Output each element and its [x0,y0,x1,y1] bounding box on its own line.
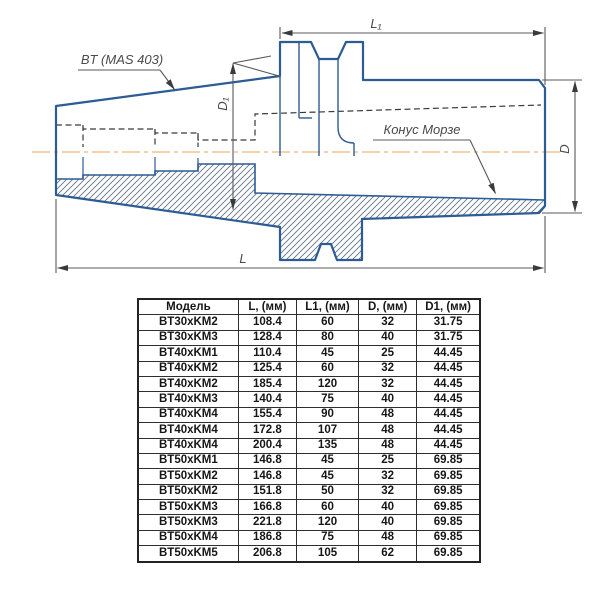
table-cell: 40 [359,500,417,515]
table-cell: 40 [359,330,417,345]
table-cell: 120 [296,515,358,530]
table-cell: 120 [296,376,358,391]
table-cell: BT40xKM2 [138,376,238,391]
table-cell: BT40xKM4 [138,407,238,422]
table-cell: 32 [359,376,417,391]
spec-table-head: МодельL, (мм)L1, (мм)D, (мм)D1, (мм) [138,299,480,315]
table-cell: 185.4 [238,376,296,391]
table-cell: 221.8 [238,515,296,530]
table-cell: 80 [296,330,358,345]
table-cell: 32 [359,484,417,499]
header-row: МодельL, (мм)L1, (мм)D, (мм)D1, (мм) [138,299,480,315]
spec-table: МодельL, (мм)L1, (мм)D, (мм)D1, (мм) BT3… [137,298,481,563]
table-cell: BT30xKM2 [138,315,238,330]
table-cell: 62 [359,546,417,562]
table-cell: 45 [296,346,358,361]
table-cell: 166.8 [238,500,296,515]
table-cell: 69.85 [417,469,480,484]
table-cell: 44.45 [417,392,480,407]
table-cell: 48 [359,407,417,422]
dim-label-l: L [239,251,246,266]
table-cell: 60 [296,315,358,330]
table-cell: 155.4 [238,407,296,422]
flange-details [280,42,354,156]
table-cell: 140.4 [238,392,296,407]
table-row: BT30xKM2108.4603231.75 [138,315,480,330]
table-cell: 60 [296,361,358,376]
table-cell: 40 [359,392,417,407]
table-cell: 31.75 [417,315,480,330]
dim-label-l1: L₁ [370,16,381,31]
table-row: BT40xKM3140.4754044.45 [138,392,480,407]
table-cell: BT50xKM4 [138,530,238,545]
morse-taper-label: Конус Морзе [384,122,461,137]
table-row: BT50xKM4186.8754869.85 [138,530,480,545]
technical-drawing: BT (MAS 403) Конус Морзе L₁ L D D₁ [0,0,606,292]
section-hatch [56,164,545,260]
table-row: BT50xKM5206.81056269.85 [138,546,480,562]
header-cell: D, (мм) [359,299,417,315]
table-cell: 172.8 [238,423,296,438]
dim-label-d: D [557,144,572,153]
table-cell: BT50xKM1 [138,453,238,468]
table-cell: 125.4 [238,361,296,376]
shank-standard-label: BT (MAS 403) [81,52,163,67]
spec-table-body: BT30xKM2108.4603231.75BT30xKM3128.480403… [138,315,480,562]
table-cell: 44.45 [417,438,480,453]
table-cell: 75 [296,392,358,407]
table-cell: 44.45 [417,407,480,422]
table-row: BT40xKM2185.41203244.45 [138,376,480,391]
table-cell: 75 [296,530,358,545]
table-cell: 110.4 [238,346,296,361]
table-cell: 31.75 [417,330,480,345]
dim-label-d1: D₁ [215,97,230,111]
table-cell: 107 [296,423,358,438]
table-cell: 60 [296,500,358,515]
table-cell: BT50xKM3 [138,515,238,530]
table-row: BT40xKM2125.4603244.45 [138,361,480,376]
table-cell: 45 [296,453,358,468]
table-cell: 32 [359,469,417,484]
table-cell: 69.85 [417,484,480,499]
table-cell: 69.85 [417,530,480,545]
table-cell: BT40xKM4 [138,438,238,453]
table-cell: 44.45 [417,376,480,391]
table-cell: 90 [296,407,358,422]
table-cell: 69.85 [417,453,480,468]
table-cell: BT40xKM1 [138,346,238,361]
table-cell: 32 [359,315,417,330]
table-cell: BT40xKM3 [138,392,238,407]
table-cell: BT40xKM2 [138,361,238,376]
table-cell: 69.85 [417,546,480,562]
table-cell: 69.85 [417,515,480,530]
table-row: BT40xKM4155.4904844.45 [138,407,480,422]
table-cell: 32 [359,361,417,376]
table-cell: 200.4 [238,438,296,453]
table-cell: BT30xKM3 [138,330,238,345]
table-cell: BT50xKM5 [138,546,238,562]
table-cell: 108.4 [238,315,296,330]
table-cell: 206.8 [238,546,296,562]
table-cell: 128.4 [238,330,296,345]
table-cell: 135 [296,438,358,453]
table-cell: 50 [296,484,358,499]
table-cell: 48 [359,423,417,438]
table-row: BT30xKM3128.4804031.75 [138,330,480,345]
table-row: BT50xKM3166.8604069.85 [138,500,480,515]
table-row: BT50xKM2151.8503269.85 [138,484,480,499]
table-cell: 45 [296,469,358,484]
table-cell: 48 [359,530,417,545]
table-cell: 69.85 [417,500,480,515]
table-row: BT40xKM1110.4452544.45 [138,346,480,361]
table-row: BT50xKM3221.81204069.85 [138,515,480,530]
table-cell: BT40xKM4 [138,423,238,438]
header-cell: L, (мм) [238,299,296,315]
header-cell: D1, (мм) [417,299,480,315]
table-row: BT40xKM4200.41354844.45 [138,438,480,453]
table-cell: 146.8 [238,469,296,484]
table-cell: 48 [359,438,417,453]
table-cell: 146.8 [238,453,296,468]
table-cell: 44.45 [417,346,480,361]
table-cell: BT50xKM2 [138,484,238,499]
table-cell: BT50xKM2 [138,469,238,484]
table-cell: BT50xKM3 [138,500,238,515]
table-cell: 44.45 [417,423,480,438]
table-cell: 25 [359,453,417,468]
table-cell: 40 [359,515,417,530]
table-cell: 186.8 [238,530,296,545]
tool-holder-datasheet: BT (MAS 403) Конус Морзе L₁ L D D₁ Модел… [0,0,606,600]
table-cell: 25 [359,346,417,361]
table-cell: 105 [296,546,358,562]
header-cell: Модель [138,299,238,315]
table-cell: 44.45 [417,361,480,376]
table-row: BT50xKM2146.8453269.85 [138,469,480,484]
header-cell: L1, (мм) [296,299,358,315]
table-cell: 151.8 [238,484,296,499]
table-row: BT40xKM4172.81074844.45 [138,423,480,438]
table-row: BT50xKM1146.8452569.85 [138,453,480,468]
